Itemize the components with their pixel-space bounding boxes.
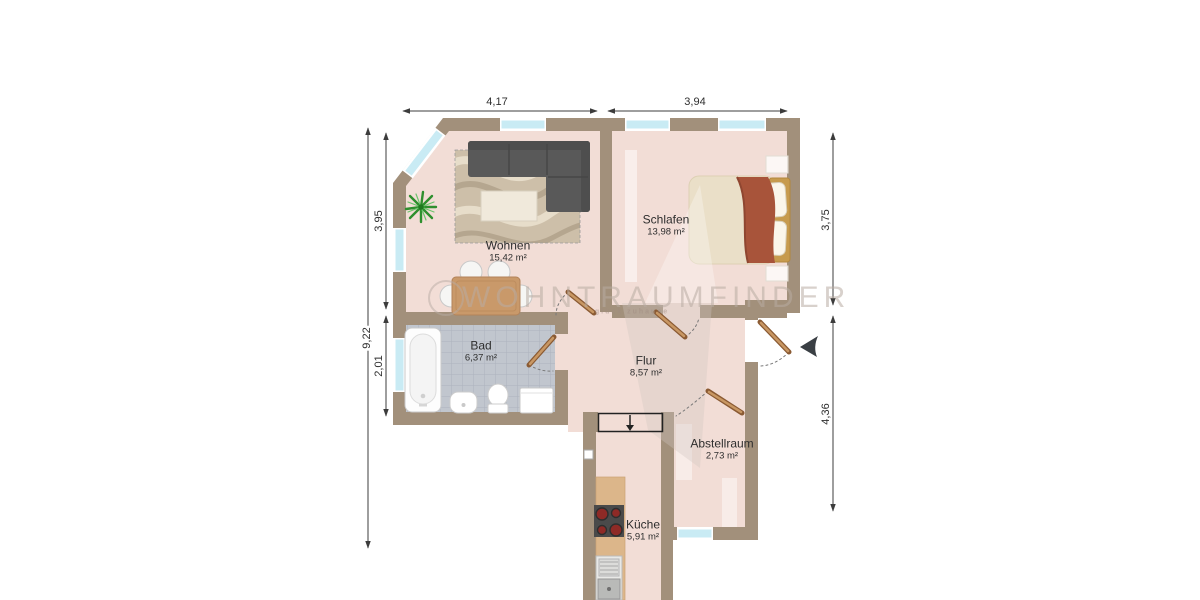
dimension-label-left-outer: 9,22 bbox=[361, 325, 373, 350]
dimension-label-right-lower: 4,36 bbox=[820, 401, 832, 426]
room-area: 8,57 m² bbox=[630, 368, 662, 379]
window bbox=[393, 338, 406, 392]
room-name: Abstellraum bbox=[690, 438, 753, 452]
window bbox=[625, 118, 670, 131]
dimension-label-left-upper: 3,95 bbox=[373, 208, 385, 233]
room-label-abstellraum: Abstellraum 2,73 m² bbox=[690, 438, 753, 463]
window bbox=[718, 118, 766, 131]
wall-fixture bbox=[584, 450, 593, 459]
window bbox=[500, 118, 546, 131]
nightstand bbox=[766, 266, 788, 281]
stove bbox=[594, 505, 624, 537]
room-label-bad: Bad 6,37 m² bbox=[465, 340, 497, 365]
entrance-arrow-icon bbox=[800, 336, 818, 357]
watermark-logo-circle bbox=[428, 280, 464, 316]
dimension-label-top-right: 3,94 bbox=[682, 96, 707, 108]
coffee-table bbox=[481, 191, 537, 221]
room-label-kueche: Küche 5,91 m² bbox=[626, 519, 660, 544]
room-label-schlafen: Schlafen 13,98 m² bbox=[643, 214, 690, 239]
room-area: 13,98 m² bbox=[643, 227, 690, 238]
room-area: 5,91 m² bbox=[626, 532, 660, 543]
nightstand bbox=[766, 156, 788, 173]
room-name: Flur bbox=[630, 355, 662, 369]
room-label-flur: Flur 8,57 m² bbox=[630, 355, 662, 380]
room-name: Küche bbox=[626, 519, 660, 533]
dimension-label-right-upper: 3,75 bbox=[820, 207, 832, 232]
room-name: Schlafen bbox=[643, 214, 690, 228]
toilet bbox=[488, 384, 508, 413]
window bbox=[677, 527, 713, 540]
floor-plan-canvas: WOHNTRAUMFINDER glück zuhause Wohnen 15,… bbox=[0, 0, 1200, 600]
sink bbox=[450, 392, 477, 413]
room-name: Bad bbox=[465, 340, 497, 354]
room-area: 2,73 m² bbox=[690, 451, 753, 462]
window bbox=[393, 228, 406, 272]
room-name: Wohnen bbox=[486, 240, 530, 254]
wardrobe bbox=[625, 150, 637, 282]
watermark-tagline: glück zuhause bbox=[595, 309, 669, 316]
room-area: 6,37 m² bbox=[465, 353, 497, 364]
dimension-label-left-lower: 2,01 bbox=[373, 353, 385, 378]
room-area: 15,42 m² bbox=[486, 253, 530, 264]
washing-machine bbox=[520, 388, 553, 413]
bathtub bbox=[405, 328, 441, 412]
storage-shelf bbox=[722, 478, 737, 527]
door-entrance bbox=[759, 322, 789, 366]
kitchen-sink bbox=[596, 556, 622, 600]
dimension-label-top-left: 4,17 bbox=[484, 96, 509, 108]
room-label-wohnen: Wohnen 15,42 m² bbox=[486, 240, 530, 265]
